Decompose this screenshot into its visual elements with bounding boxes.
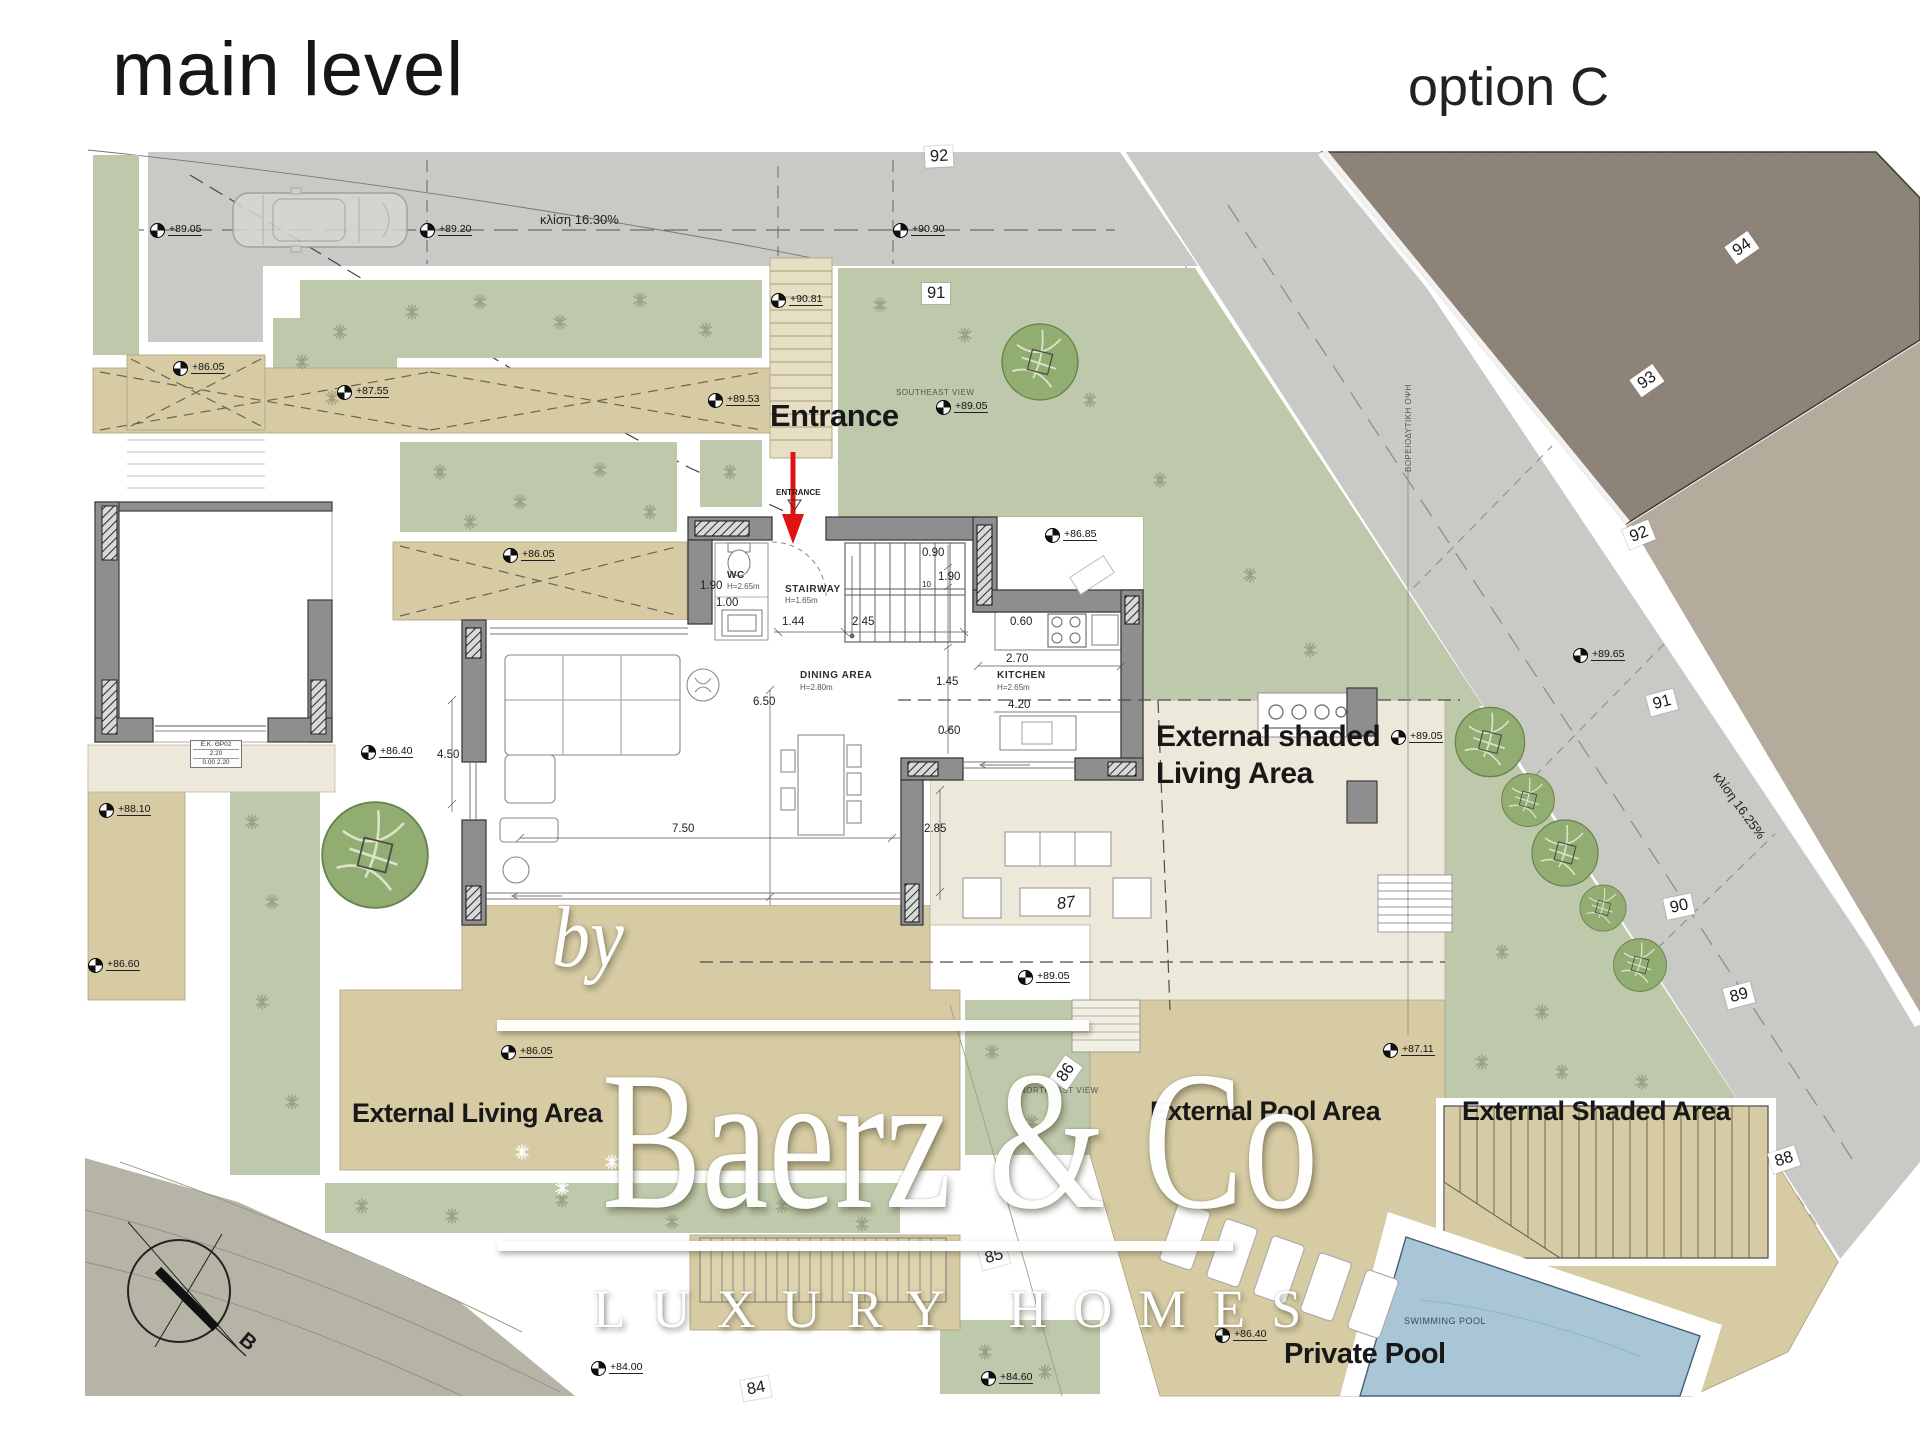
elevation-marker: +89.05	[936, 400, 988, 415]
level-marker-icon	[99, 803, 114, 818]
elevation-marker: +90.81	[771, 293, 823, 308]
level-marker-icon	[150, 223, 165, 238]
level-marker-icon	[503, 548, 518, 563]
room-stairway: STAIRWAY	[785, 584, 841, 595]
elevation-marker: +88.10	[99, 803, 151, 818]
external-shaded-living-label-2: Living Area	[1156, 757, 1313, 791]
southeast-view-label: SOUTHEAST VIEW	[896, 388, 974, 397]
garage-annex	[95, 440, 332, 742]
watermark-bar-bottom	[497, 1241, 1233, 1251]
dim-label: 0.60	[938, 725, 960, 737]
floor-plan-page: main level option C Entrance External sh…	[0, 0, 1920, 1440]
car-icon	[233, 188, 407, 252]
watermark-bar-top	[497, 1020, 1089, 1031]
dim-label: 1.90	[700, 580, 722, 592]
contour-tag: 92	[924, 145, 953, 168]
dim-label: 2.85	[924, 823, 946, 835]
level-marker-icon	[591, 1361, 606, 1376]
dim-label: 1.45	[936, 676, 958, 688]
dim-label: 2.70	[1006, 653, 1028, 665]
elevation-marker: +86.85	[1045, 528, 1097, 543]
northwest-view-label: ΒΟΡΕΙΟΔΥΤΙΚΗ ΟΨΗ	[1404, 384, 1413, 472]
dim-label: 10	[922, 580, 931, 589]
contour-tag: 87	[1051, 891, 1082, 916]
elevation-marker: +86.05	[503, 548, 555, 563]
elevation-marker: +89.05	[1018, 970, 1070, 985]
door-schedule-tag: E.K. ΘΡ022.200.00 2.20	[190, 740, 242, 768]
dim-label: 0.90	[922, 547, 944, 559]
level-marker-icon	[88, 958, 103, 973]
level-marker-icon	[173, 361, 188, 376]
private-pool-label: Private Pool	[1284, 1338, 1446, 1371]
dim-label: 0.60	[1010, 616, 1032, 628]
room-dining: DINING AREA	[800, 670, 872, 681]
dim-label: 1.90	[938, 571, 960, 583]
page-title: main level	[112, 26, 464, 113]
slope-label-top: κλίση 16.30%	[540, 212, 619, 227]
dim-label: 6.50	[753, 696, 775, 708]
elevation-marker: +84.00	[591, 1361, 643, 1376]
elevation-marker: +87.55	[337, 385, 389, 400]
contour-tag: 91	[922, 283, 950, 304]
room-wc-height: H=2.65m	[727, 582, 760, 591]
elevation-marker: +86.60	[88, 958, 140, 973]
entrance-label: Entrance	[770, 398, 899, 434]
level-marker-icon	[361, 745, 376, 760]
dim-label: 1.44	[782, 616, 804, 628]
level-marker-icon	[337, 385, 352, 400]
elevation-marker: +84.60	[981, 1371, 1033, 1386]
option-label: option C	[1408, 56, 1609, 118]
level-marker-icon	[893, 223, 908, 238]
elevation-marker: +89.53	[708, 393, 760, 408]
level-marker-icon	[1045, 528, 1060, 543]
entrance-small-label: ENTRANCE	[776, 488, 820, 497]
dim-label: 1.00	[716, 597, 738, 609]
level-marker-icon	[1573, 648, 1588, 663]
level-marker-icon	[981, 1371, 996, 1386]
dim-label: 2.45	[852, 616, 874, 628]
watermark-by: by	[552, 888, 624, 988]
dim-label: 4.20	[1008, 699, 1030, 711]
level-marker-icon	[771, 293, 786, 308]
level-marker-icon	[1018, 970, 1033, 985]
room-dining-height: H=2.80m	[800, 683, 833, 692]
elevation-marker: +86.40	[361, 745, 413, 760]
external-shaded-living-label-1: External shaded	[1156, 720, 1380, 754]
room-kitchen-height: H=2.65m	[997, 683, 1030, 692]
external-shaded-area-label: External Shaded Area	[1462, 1096, 1730, 1127]
elevation-marker: +89.05	[1391, 730, 1443, 745]
dim-label: 7.50	[672, 823, 694, 835]
elevation-marker: +89.20	[420, 223, 472, 238]
room-kitchen: KITCHEN	[997, 670, 1046, 681]
elevation-marker: +86.05	[173, 361, 225, 376]
elevation-marker: +89.65	[1573, 648, 1625, 663]
elevation-marker: +90.90	[893, 223, 945, 238]
watermark-tagline: LUXURY HOMES	[560, 1278, 1360, 1340]
level-marker-icon	[708, 393, 723, 408]
level-marker-icon	[420, 223, 435, 238]
level-marker-icon	[1391, 730, 1406, 745]
watermark-brand: Baerz & Co	[460, 1042, 1460, 1240]
elevation-marker: +89.05	[150, 223, 202, 238]
level-marker-icon	[936, 400, 951, 415]
room-stairway-height: H=1.65m	[785, 596, 818, 605]
dim-label: 4.50	[437, 749, 459, 761]
swimming-pool-label: SWIMMING POOL	[1404, 1316, 1486, 1326]
room-wc: WC	[727, 570, 745, 581]
